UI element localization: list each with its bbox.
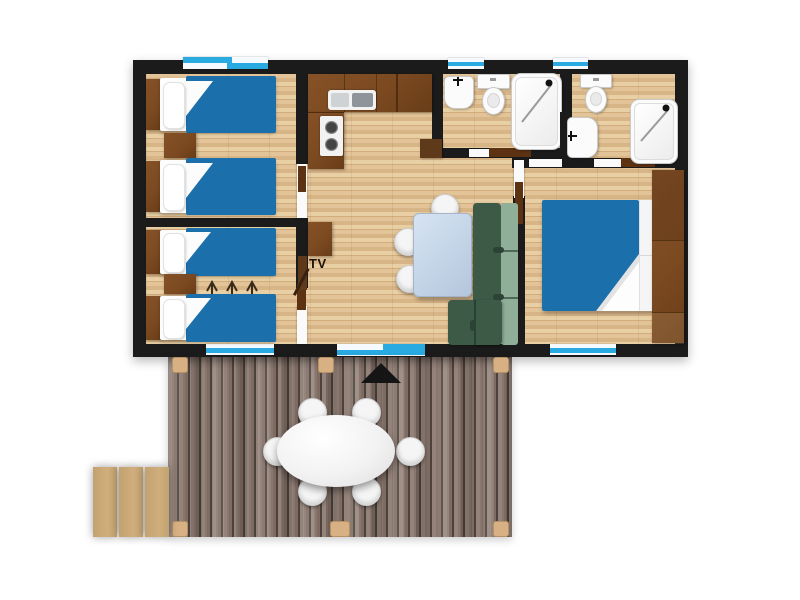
nightstand — [164, 133, 196, 158]
window-pane — [183, 57, 232, 63]
pillow — [163, 299, 185, 339]
deck-step — [93, 467, 117, 537]
tv-label: TV — [309, 256, 327, 271]
window-pane — [337, 350, 425, 355]
entrance-arrow-icon — [361, 363, 401, 383]
patio-table — [277, 415, 395, 487]
shower-tray — [511, 73, 562, 150]
window-bathroom2 — [553, 58, 588, 69]
toilet-seat — [487, 93, 500, 108]
window-bathroom1 — [448, 58, 484, 69]
window-pane — [206, 348, 274, 353]
sofa-tab — [493, 294, 504, 300]
doorway-bathroom2 — [594, 159, 623, 167]
deck-post — [172, 357, 188, 373]
nightstand — [164, 274, 196, 294]
deck-post — [330, 521, 350, 537]
faucet-icon — [570, 131, 572, 141]
toilet-bowl — [482, 87, 505, 115]
toilet-seat — [590, 92, 602, 106]
sink-drainer — [331, 93, 349, 107]
stove-burner — [325, 121, 338, 134]
cabinet-seam — [396, 74, 398, 112]
tv-dresser — [308, 222, 332, 256]
flush-button — [490, 78, 496, 81]
twin-bed — [146, 76, 276, 133]
shower-icon — [631, 100, 677, 163]
window-pane — [448, 62, 484, 67]
door-bedroom1 — [298, 166, 306, 192]
deck-post — [493, 521, 509, 537]
kitchen-cabinet — [420, 139, 442, 158]
sofa-tab — [470, 320, 476, 331]
window-bedroom2 — [206, 344, 274, 355]
flush-button — [593, 78, 599, 81]
shower-tray — [630, 99, 678, 164]
doorway-bedroom3-top — [529, 159, 562, 167]
wardrobe-headboard — [652, 170, 684, 343]
wall-bedroom-divider — [146, 218, 308, 227]
deck-post — [318, 357, 334, 373]
deck-step — [145, 467, 169, 537]
pillow — [163, 82, 185, 129]
canvas: { "labels": { "tv_label": "TV" }, "icons… — [0, 0, 800, 600]
wardrobe-segment — [652, 170, 684, 240]
dining-table — [413, 213, 472, 297]
washbasin — [444, 76, 474, 109]
twin-bed — [146, 228, 276, 276]
cabinet-seam — [376, 74, 377, 112]
window-pane — [227, 63, 268, 69]
window-pane — [553, 62, 588, 67]
window-bedroom1 — [183, 57, 268, 69]
kitchen-sink — [328, 90, 376, 110]
pillow — [163, 233, 185, 273]
stove-burner — [325, 138, 338, 151]
deck-post — [493, 357, 509, 373]
faucet-icon — [453, 79, 463, 81]
wardrobe-segment — [652, 312, 684, 344]
twin-bed — [146, 294, 276, 342]
patio-chair — [396, 437, 425, 466]
stove — [320, 116, 343, 156]
window-bedroom3 — [550, 344, 616, 355]
twin-bed — [146, 158, 276, 215]
shower-icon — [512, 74, 561, 149]
toilet-bowl — [585, 86, 607, 113]
deck-step — [119, 467, 143, 537]
sliding-door-living — [337, 344, 425, 356]
wall-bedroom1-right — [296, 74, 308, 164]
sofa-backrest — [501, 203, 518, 345]
window-pane — [383, 344, 425, 350]
doorway-bedroom2 — [297, 306, 307, 344]
sink-basin — [352, 93, 373, 107]
pillow — [163, 164, 185, 211]
wardrobe-seam — [652, 240, 684, 241]
window-pane — [550, 348, 616, 353]
deck-post — [172, 521, 188, 537]
washbasin — [567, 117, 598, 158]
sofa-tab — [493, 247, 504, 253]
